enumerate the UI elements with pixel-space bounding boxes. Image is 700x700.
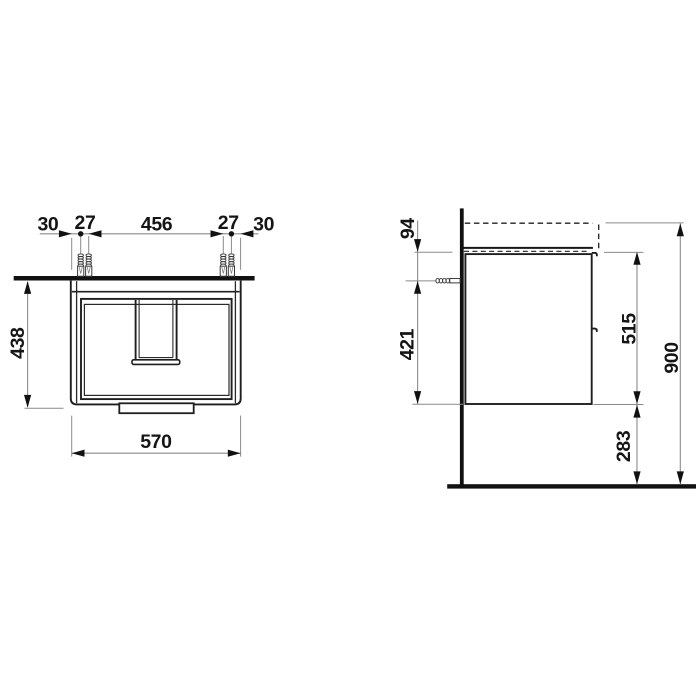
svg-text:438: 438	[7, 327, 29, 359]
svg-text:900: 900	[661, 342, 683, 374]
svg-text:515: 515	[618, 313, 640, 345]
svg-text:421: 421	[396, 328, 418, 360]
svg-text:283: 283	[613, 430, 635, 462]
svg-text:27: 27	[75, 212, 96, 234]
svg-text:30: 30	[37, 213, 58, 235]
svg-text:30: 30	[253, 213, 274, 235]
svg-text:27: 27	[218, 212, 239, 234]
svg-text:456: 456	[141, 213, 173, 235]
svg-text:94: 94	[397, 218, 419, 239]
svg-text:570: 570	[140, 431, 172, 453]
